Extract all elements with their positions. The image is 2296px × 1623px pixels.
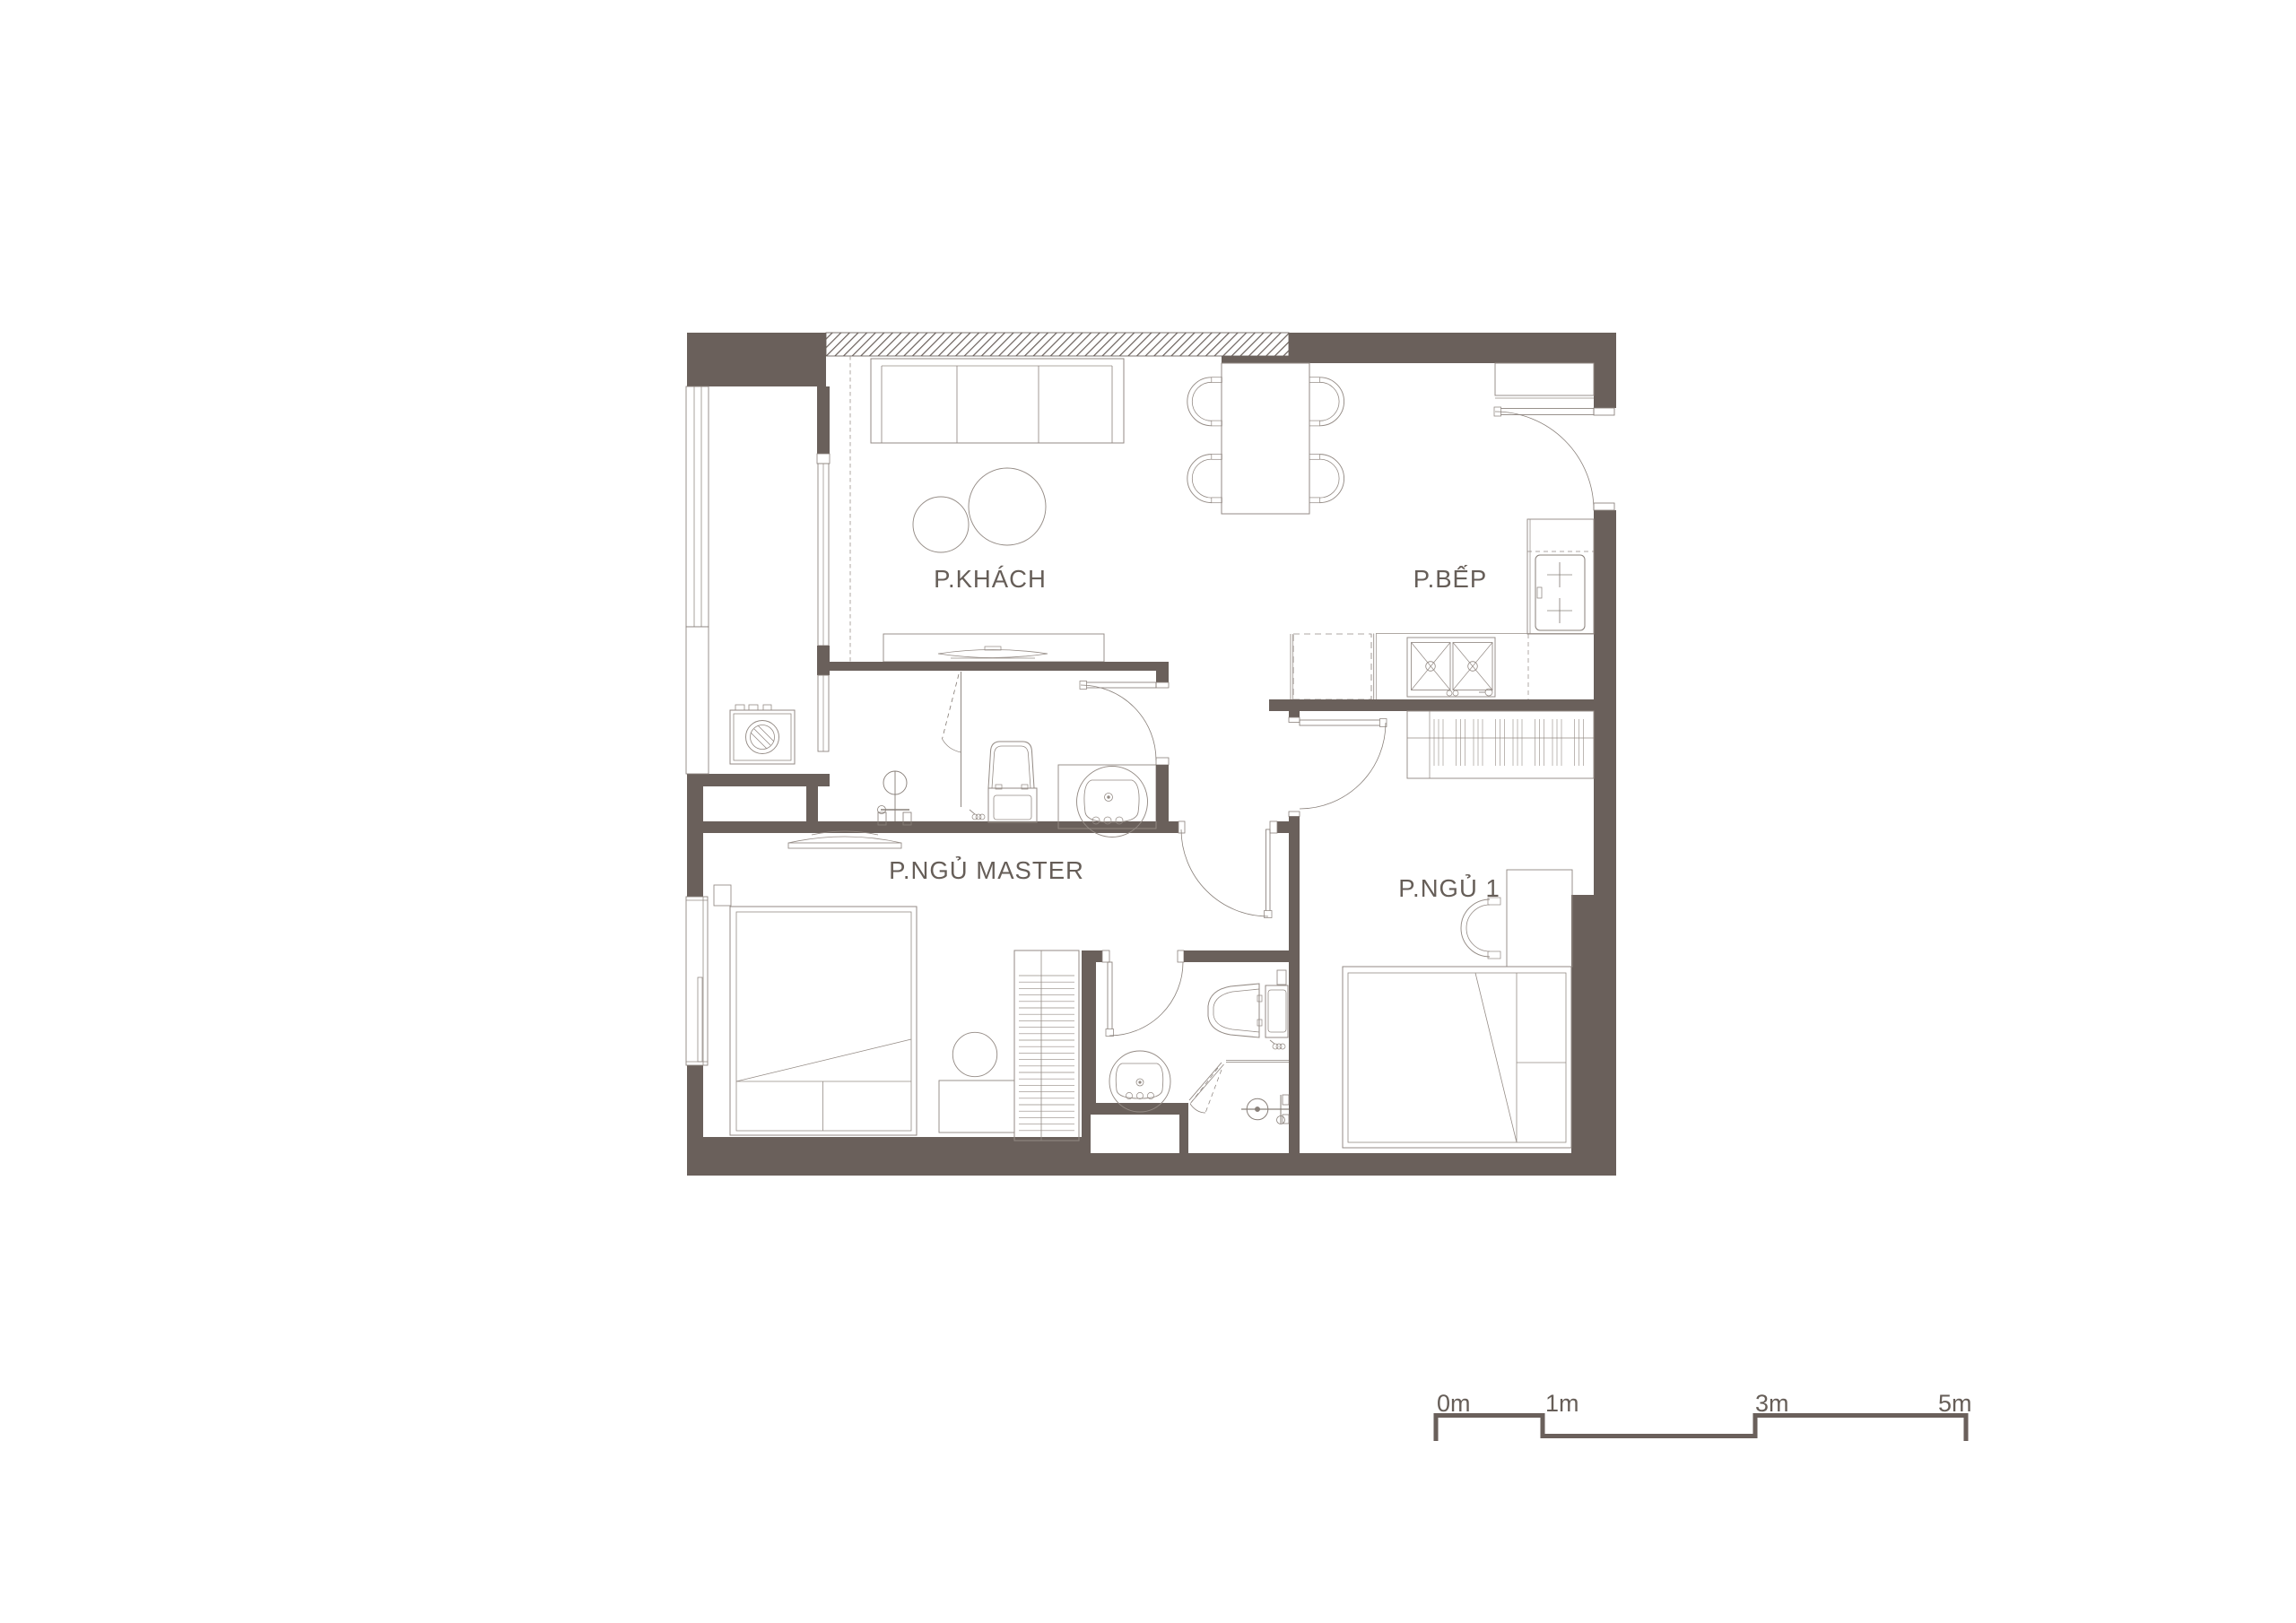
svg-text:5m: 5m bbox=[1938, 1390, 1972, 1417]
svg-text:3m: 3m bbox=[1755, 1390, 1789, 1417]
svg-text:P.NGỦ MASTER: P.NGỦ MASTER bbox=[889, 855, 1084, 884]
svg-text:P.BẾP: P.BẾP bbox=[1413, 565, 1487, 593]
svg-text:1m: 1m bbox=[1545, 1390, 1579, 1417]
svg-text:P.KHÁCH: P.KHÁCH bbox=[934, 565, 1047, 593]
svg-text:P.NGỦ 1: P.NGỦ 1 bbox=[1398, 873, 1500, 902]
svg-text:0m: 0m bbox=[1437, 1390, 1471, 1417]
